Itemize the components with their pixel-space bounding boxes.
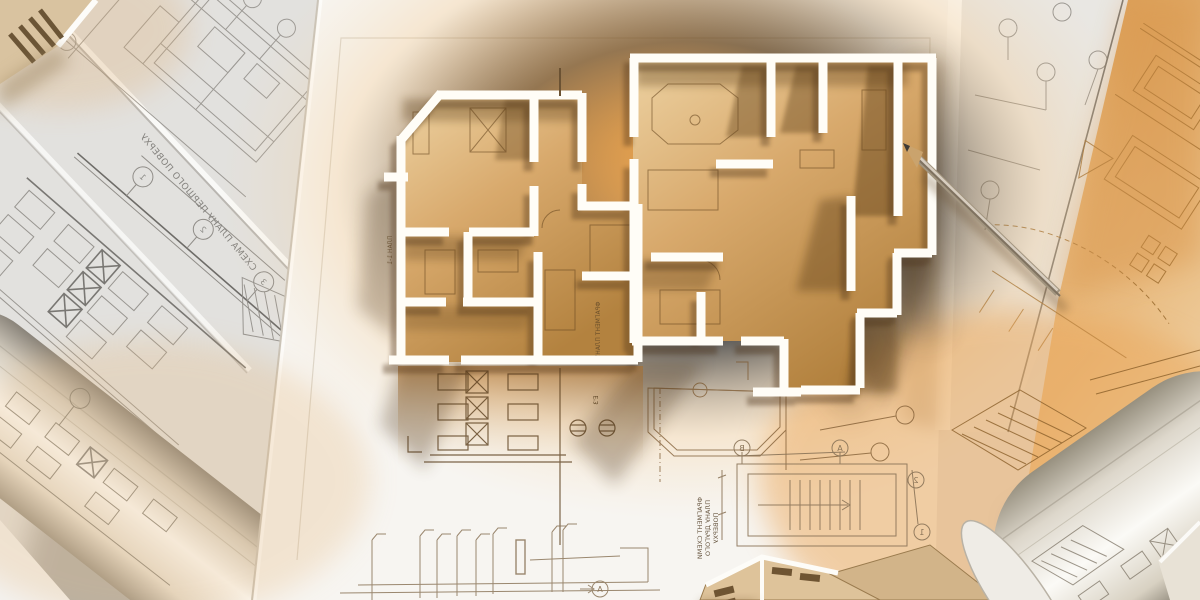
model-note: ФРАГМЕНТ ПЛАНУ [595,302,602,359]
detail-bubble-A: А [597,585,603,594]
svg-text:ФРАГМЕНТ СХЕМИ: ФРАГМЕНТ СХЕМИ [696,497,704,559]
stair-bubble-A: А [837,444,843,453]
architectural-scene: 1 2 3 СХЕМА ПЛАНУ ПЕРШОГО ПОВЕРХУ [0,0,1200,600]
stair-bubble-B: В [739,444,745,453]
svg-text:ПЛАНУ ДРУГОГО: ПЛАНУ ДРУГОГО [704,500,712,556]
scene-canvas: 1 2 3 СХЕМА ПЛАНУ ПЕРШОГО ПОВЕРХУ [0,0,1200,600]
stair-bubble-2: 2 [913,476,918,485]
stair-bubble-1: 1 [919,528,924,537]
elevation-mark: Е'3 [593,395,600,404]
svg-text:ПОВЕРХУ: ПОВЕРХУ [712,513,720,544]
